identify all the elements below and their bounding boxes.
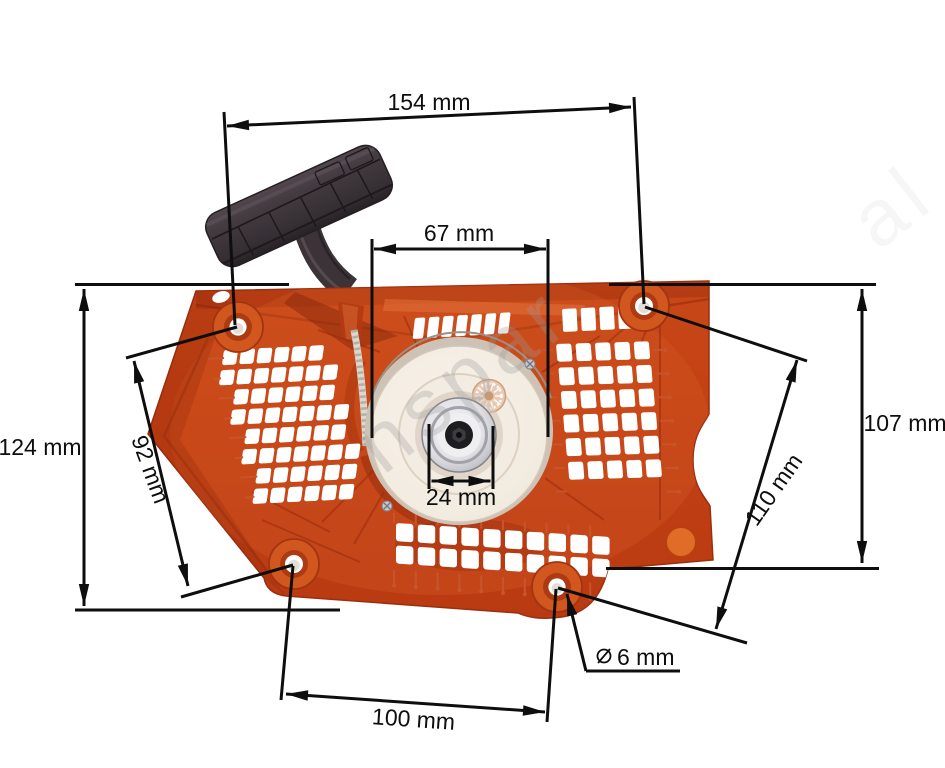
svg-text:154 mm: 154 mm: [387, 89, 470, 115]
svg-text:24 mm: 24 mm: [426, 484, 496, 510]
svg-text:124 mm: 124 mm: [0, 434, 82, 460]
svg-text:6 mm: 6 mm: [617, 644, 675, 670]
svg-text:67 mm: 67 mm: [424, 220, 494, 246]
svg-text:107 mm: 107 mm: [863, 410, 945, 436]
